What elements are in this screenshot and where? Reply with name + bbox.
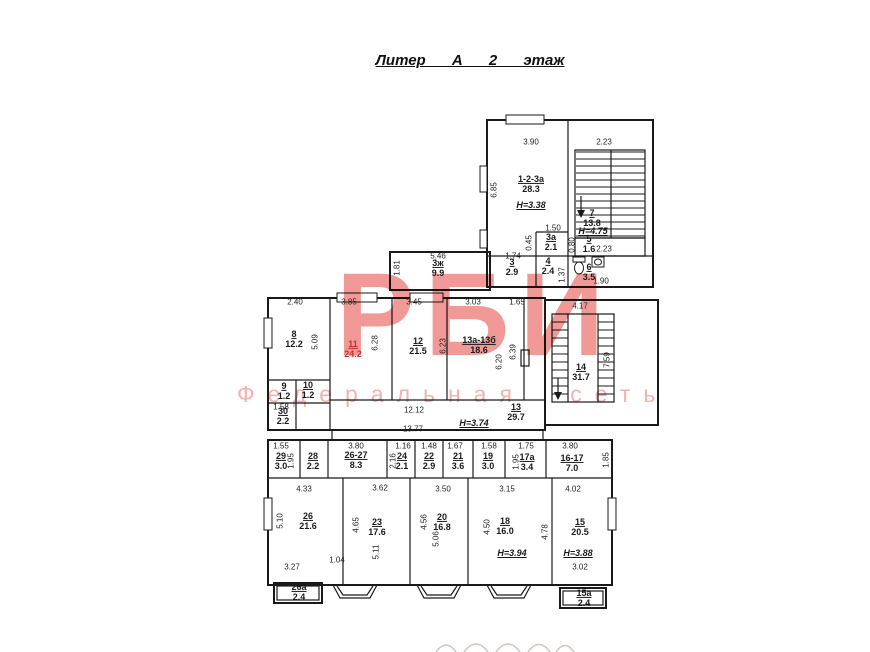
- room-label: 91.2: [278, 381, 291, 401]
- dimension-label: 6.39: [509, 344, 518, 360]
- dimension-label: 0.45: [525, 235, 534, 251]
- height-label: Н=3.88: [563, 548, 592, 558]
- room-label: 2317.6: [368, 517, 386, 537]
- dimension-label: 1.58: [481, 442, 497, 451]
- room-area: 9.9: [432, 268, 445, 278]
- room-area: 16.0: [496, 526, 514, 536]
- dimension-label: 1.58: [273, 403, 289, 412]
- room-label: 2016.8: [433, 512, 451, 532]
- room-number: 15: [571, 517, 589, 527]
- room-number: 21: [452, 451, 465, 461]
- room-number: 17а: [519, 452, 534, 462]
- height-label: Н=3.94: [497, 548, 526, 558]
- dimension-label: 7.59: [603, 352, 612, 368]
- room-area: 3.4: [519, 462, 534, 472]
- room-area: 3.0: [275, 461, 288, 471]
- dimension-label: 4.78: [541, 524, 550, 540]
- dimension-label: 1.75: [518, 442, 534, 451]
- dimension-label: 1.67: [447, 442, 463, 451]
- dimension-label: 3.27: [284, 563, 300, 572]
- room-label: 1816.0: [496, 516, 514, 536]
- room-number: 20: [433, 512, 451, 522]
- dimension-label: 6.20: [495, 354, 504, 370]
- room-number: 14: [572, 362, 590, 372]
- dimension-label: 1.85: [602, 452, 611, 468]
- room-number: 24: [396, 451, 409, 461]
- room-area: 1.6: [583, 244, 596, 254]
- dimension-label: 6.85: [490, 182, 499, 198]
- room-area: 1.2: [302, 390, 315, 400]
- room-label: 13а-13б18.6: [462, 335, 496, 355]
- dimension-label: 1.48: [421, 442, 437, 451]
- dimension-label: 3.85: [341, 298, 357, 307]
- dimension-label: 3.03: [465, 298, 481, 307]
- room-area: 24.2: [344, 349, 362, 359]
- dimension-label: 2.16: [389, 453, 398, 469]
- room-number: 9: [278, 381, 291, 391]
- room-area: 2.9: [423, 461, 436, 471]
- room-area: 2.1: [396, 461, 409, 471]
- room-label: 242.1: [396, 451, 409, 471]
- dimension-label: 1.81: [393, 260, 402, 276]
- dimension-label: 1.90: [593, 277, 609, 286]
- room-area: 21.5: [409, 346, 427, 356]
- room-area: 21.6: [299, 521, 317, 531]
- dimension-label: 4.56: [420, 514, 429, 530]
- dimension-label: 4.02: [565, 485, 581, 494]
- room-number: 28: [307, 451, 320, 461]
- room-number: 29: [275, 451, 288, 461]
- room-label: 16-177.0: [560, 453, 583, 473]
- room-number: 26: [299, 511, 317, 521]
- room-area: 8.3: [344, 460, 367, 470]
- dimension-label: 1.74: [505, 252, 521, 261]
- room-area: 28.3: [518, 184, 544, 194]
- dimension-label: 4.50: [483, 519, 492, 535]
- dimension-label: 1.95: [512, 454, 521, 470]
- dimension-label: 4.33: [296, 485, 312, 494]
- room-label: 1-2-3а28.3: [518, 174, 544, 194]
- room-area: 20.5: [571, 527, 589, 537]
- dimension-label: 1.95: [287, 453, 296, 469]
- room-number: 26а: [291, 582, 306, 592]
- room-area: 12.2: [285, 339, 303, 349]
- room-number: 19: [482, 451, 495, 461]
- dimension-label: 4.65: [352, 517, 361, 533]
- dimension-label: 3.62: [372, 484, 388, 493]
- dimension-label: 3.45: [406, 298, 422, 307]
- labels-layer: 1-2-3а28.3713.851.63а2.132.942.463.53ж9.…: [0, 0, 870, 652]
- dimension-label: 6.28: [371, 335, 380, 351]
- room-area: 2.4: [576, 598, 591, 608]
- room-number: 12: [409, 336, 427, 346]
- room-area: 2.4: [291, 592, 306, 602]
- room-area: 29.7: [507, 412, 525, 422]
- dimension-label: 0.80: [568, 237, 577, 253]
- dimension-label: 1.65: [509, 298, 525, 307]
- height-label: Н=4.75: [578, 226, 607, 236]
- room-label: 293.0: [275, 451, 288, 471]
- room-number: 4: [542, 256, 555, 266]
- room-label: 42.4: [542, 256, 555, 276]
- room-label: 1431.7: [572, 362, 590, 382]
- room-number: 6: [583, 262, 596, 272]
- room-label: 812.2: [285, 329, 303, 349]
- room-label: 2621.6: [299, 511, 317, 531]
- room-area: 3.0: [482, 461, 495, 471]
- room-number: 11: [344, 339, 362, 349]
- dimension-label: 2.23: [596, 245, 612, 254]
- dimension-label: 2.40: [287, 298, 303, 307]
- room-area: 3.6: [452, 461, 465, 471]
- room-number: 18: [496, 516, 514, 526]
- dimension-label: 12.12: [404, 406, 424, 415]
- room-label: 51.6: [583, 234, 596, 254]
- room-number: 8: [285, 329, 303, 339]
- floorplan-canvas: Литер А 2 этаж: [0, 0, 870, 652]
- dimension-label: 1.55: [273, 442, 289, 451]
- room-number: 7: [583, 208, 601, 218]
- room-number: 15а: [576, 588, 591, 598]
- room-label: 3ж9.9: [432, 258, 445, 278]
- height-label: Н=3.74: [459, 418, 488, 428]
- room-label: 282.2: [307, 451, 320, 471]
- room-area: 2.1: [545, 242, 558, 252]
- room-number: 3а: [545, 232, 558, 242]
- room-label: 26а2.4: [291, 582, 306, 602]
- room-label: 15а2.4: [576, 588, 591, 608]
- room-number: 16-17: [560, 453, 583, 463]
- room-area: 18.6: [462, 345, 496, 355]
- dimension-label: 6.23: [439, 338, 448, 354]
- room-number: 23: [368, 517, 386, 527]
- room-number: 10: [302, 380, 315, 390]
- room-label: 213.6: [452, 451, 465, 471]
- room-number: 26-27: [344, 450, 367, 460]
- dimension-label: 13.77: [403, 425, 423, 434]
- room-number: 13а-13б: [462, 335, 496, 345]
- dimension-label: 5.46: [430, 252, 446, 261]
- room-number: 1-2-3а: [518, 174, 544, 184]
- room-label: 193.0: [482, 451, 495, 471]
- dimension-label: 3.90: [523, 138, 539, 147]
- dimension-label: 2.23: [596, 138, 612, 147]
- room-label: 222.9: [423, 451, 436, 471]
- room-label: 26-278.3: [344, 450, 367, 470]
- room-area: 7.0: [560, 463, 583, 473]
- room-label: 1124.2: [344, 339, 362, 359]
- dimension-label: 5.10: [276, 513, 285, 529]
- room-number: 13: [507, 402, 525, 412]
- room-label: 1221.5: [409, 336, 427, 356]
- room-label: 1329.7: [507, 402, 525, 422]
- dimension-label: 1.16: [395, 442, 411, 451]
- room-area: 2.2: [307, 461, 320, 471]
- dimension-label: 3.02: [572, 563, 588, 572]
- dimension-label: 3.80: [562, 442, 578, 451]
- dimension-label: 4.17: [572, 302, 588, 311]
- room-label: 17а3.4: [519, 452, 534, 472]
- dimension-label: 1.37: [558, 267, 567, 283]
- dimension-label: 5.11: [372, 545, 381, 560]
- dimension-label: 1.04: [329, 556, 345, 565]
- room-area: 17.6: [368, 527, 386, 537]
- plan-title: Литер А 2 этаж: [376, 52, 565, 69]
- room-area: 2.4: [542, 266, 555, 276]
- dimension-label: 5.09: [311, 334, 320, 350]
- room-label: 101.2: [302, 380, 315, 400]
- dimension-label: 3.50: [435, 485, 451, 494]
- room-area: 31.7: [572, 372, 590, 382]
- dimension-label: 5.06: [432, 531, 441, 547]
- room-label: 1520.5: [571, 517, 589, 537]
- dimension-label: 3.15: [499, 485, 515, 494]
- room-area: 1.2: [278, 391, 291, 401]
- dimension-label: 3.80: [348, 442, 364, 451]
- room-number: 22: [423, 451, 436, 461]
- room-area: 2.9: [506, 267, 519, 277]
- room-area: 2.2: [277, 416, 290, 426]
- dimension-label: 1.50: [545, 224, 561, 233]
- height-label: Н=3.38: [516, 200, 545, 210]
- room-label: 3а2.1: [545, 232, 558, 252]
